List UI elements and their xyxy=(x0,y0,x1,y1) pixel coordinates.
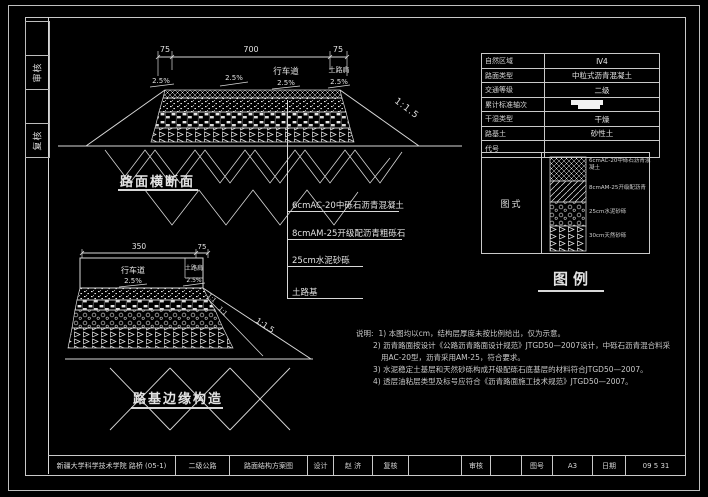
callout-underline-1 xyxy=(287,211,399,212)
note-line: 2) 沥青路面按设计《公路沥青路面设计规范》JTGD50—2007设计，中砾石沥… xyxy=(373,340,688,352)
shoulder-label: 土路肩 xyxy=(329,65,350,74)
top-cross-section-drawing: 75 700 75 行车道 2.5% 土路肩 2.5% 2.5% 2.5% 1:… xyxy=(50,40,470,270)
edge-dim-350: 350 xyxy=(132,242,147,251)
legend-layer-stack xyxy=(549,156,589,252)
table-row: 自然区域 Ⅳ4 xyxy=(482,54,659,68)
legend-title-underline xyxy=(538,290,604,292)
row-value: 砂性土 xyxy=(545,127,659,140)
legend-layer-label-3: 25cm水泥砂砾 xyxy=(589,209,655,216)
row-value: 中粒式沥青混凝土 xyxy=(545,69,659,82)
note-line: 用AC-20型，沥青采用AM-25，符合要求。 xyxy=(381,352,688,364)
edge-lane-label: 行车道 xyxy=(121,265,145,275)
lane-label: 行车道 xyxy=(273,66,299,77)
notes-heading: 说明: xyxy=(356,329,374,338)
stamp-column: 审核 复核 xyxy=(25,22,50,158)
design-parameters-table: 自然区域 Ⅳ4 路面类型 中粒式沥青混凝土 交通等级 二级 累计标准轴次 干湿类… xyxy=(481,53,660,158)
dim-75-left: 75 xyxy=(160,45,170,54)
cad-drawing-sheet: 审核 复核 xyxy=(0,0,708,497)
side-slope-label: 1:1.5 xyxy=(392,96,420,121)
masked-value-bar xyxy=(578,105,600,109)
row-label: 交通等级 xyxy=(482,83,545,97)
legend-layer-label-2: 8cmAM-25开级配沥青 xyxy=(589,185,655,192)
title-bar: 新疆大学科学技术学院 路桥 (05-1) 二级公路 路面结构方案图 设计 赵 济… xyxy=(48,455,686,476)
dim-75-right: 75 xyxy=(333,45,343,54)
note-line: 3) 水泥稳定土基层和天然砂砾构成开级配砾石底基层的材料符合JTGD50—200… xyxy=(373,364,688,376)
titlebar-designer-name: 赵 济 xyxy=(334,456,373,476)
titlebar-checker-name xyxy=(409,456,462,476)
dim-700: 700 xyxy=(243,45,258,54)
note-text: 1) 本图均以cm，结构层厚度未按比例给出，仅为示意。 xyxy=(379,329,566,338)
legend-title: 图例 xyxy=(538,268,608,289)
table-row: 干湿类型 干燥 xyxy=(482,111,659,126)
titlebar-sheet-no-value: A3 xyxy=(553,456,593,476)
row-label: 路面类型 xyxy=(482,69,545,82)
titlebar-drawing-title: 路面结构方案图 xyxy=(230,456,308,476)
shoulder-slope-label: 2.5% xyxy=(330,78,348,86)
edge-lane-slope: 2.5% xyxy=(124,277,142,285)
row-label: 路基土 xyxy=(482,127,545,140)
titlebar-date-label: 日期 xyxy=(593,456,626,476)
callout-layer-2: 8cmAM-25开级配沥青粗砾石 xyxy=(292,227,405,239)
stamp-label-shenhe: 审核 xyxy=(31,62,44,82)
stamp-box-fuhe: 复核 xyxy=(25,123,50,158)
row-label: 累计标准轴次 xyxy=(482,98,545,111)
callout-layer-1: 6cmAC-20中砾石沥青混凝土 xyxy=(292,199,404,211)
titlebar-date-value: 09 5 31 xyxy=(626,456,686,476)
table-row: 路面类型 中粒式沥青混凝土 xyxy=(482,68,659,82)
edge-slope-1-1-b: 1:1 xyxy=(217,305,229,317)
diagram-row-label: 图式 xyxy=(482,153,542,253)
table-row: 路基土 砂性土 xyxy=(482,126,659,140)
top-section-title-underline xyxy=(118,189,198,191)
titlebar-sheet-no-label: 图号 xyxy=(522,456,553,476)
notes-block: 说明:1) 本图均以cm，结构层厚度未按比例给出，仅为示意。 2) 沥青路面按设… xyxy=(356,328,688,388)
legend-layer-label-1: 6cmAC-20中砾石沥青混凝土 xyxy=(589,158,655,171)
lane-slope-label: 2.5% xyxy=(277,79,295,87)
note-line: 4) 透层油粘层类型及标号应符合《沥青路面施工技术规范》JTGD50—2007。 xyxy=(373,376,688,388)
titlebar-checker-label: 复核 xyxy=(373,456,409,476)
mid-slope-label: 2.5% xyxy=(225,74,243,82)
legend-layer-label-4: 30cm天然砂砾 xyxy=(589,233,655,240)
titlebar-designer-label: 设计 xyxy=(308,456,334,476)
row-value-masked xyxy=(545,98,659,111)
stamp-box-empty-1 xyxy=(25,21,50,56)
edge-dim-75: 75 xyxy=(198,243,207,251)
edge-shoulder-slope: 2.5% xyxy=(186,277,202,284)
row-value: 二级 xyxy=(545,83,659,97)
table-row: 累计标准轴次 xyxy=(482,97,659,111)
edge-section-title-underline xyxy=(131,407,223,409)
stamp-box-empty-2 xyxy=(25,89,50,124)
diagram-area: 6cmAC-20中砾石沥青混凝土 8cmAM-25开级配沥青 25cm水泥砂砾 … xyxy=(542,153,649,253)
edge-side-slope: 1:1.5 xyxy=(254,316,276,335)
note-line: 说明:1) 本图均以cm，结构层厚度未按比例给出，仅为示意。 xyxy=(356,328,688,340)
stamp-label-fuhe: 复核 xyxy=(31,130,44,150)
edge-shoulder-label: 土路肩 xyxy=(185,264,203,272)
titlebar-reviewer-label: 审核 xyxy=(462,456,491,476)
row-label: 干湿类型 xyxy=(482,112,545,126)
table-row: 交通等级 二级 xyxy=(482,82,659,97)
layer-diagram-box: 图式 6cmAC-20中砾石沥青混凝土 8cmAM-25开级配沥青 25cm水泥… xyxy=(481,152,650,254)
stamp-box-shenhe: 审核 xyxy=(25,55,50,90)
edge-detail-drawing: 350 75 行车道 2.5% 土路肩 2.5% 1:1 1:1 1:1.5 xyxy=(55,240,345,440)
edge-section-title: 路基边缘构造 xyxy=(133,388,223,407)
row-value: Ⅳ4 xyxy=(545,54,659,68)
titlebar-institution: 新疆大学科学技术学院 路桥 (05-1) xyxy=(48,456,176,476)
top-section-title: 路面横断面 xyxy=(120,171,195,190)
titlebar-road-class: 二级公路 xyxy=(176,456,230,476)
left-slope-label: 2.5% xyxy=(152,77,170,85)
row-value: 干燥 xyxy=(545,112,659,126)
row-label: 自然区域 xyxy=(482,54,545,68)
titlebar-reviewer-name xyxy=(491,456,522,476)
